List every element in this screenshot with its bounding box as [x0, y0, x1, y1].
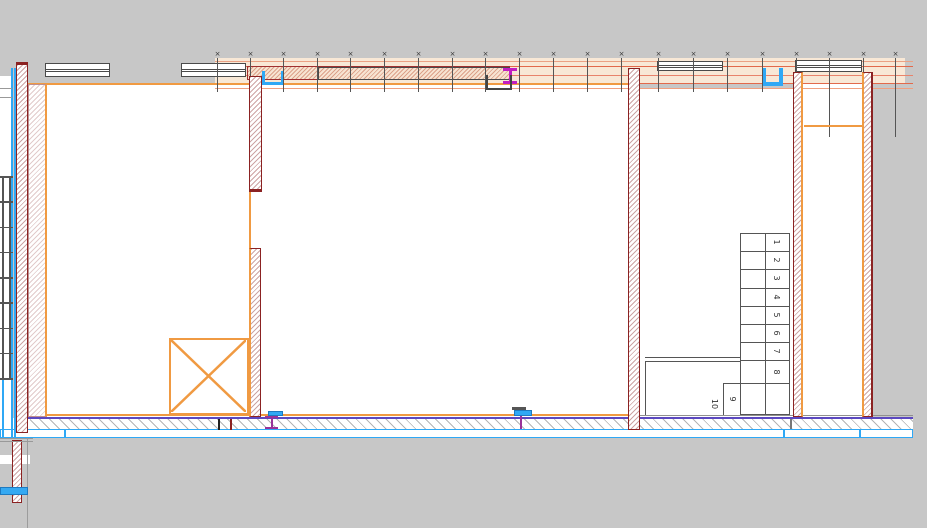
partition-wall-upper: [249, 76, 262, 192]
strip-tick-red: [230, 419, 232, 430]
column-marker-icon: ×: [550, 51, 557, 58]
ladder-rung: [0, 328, 13, 330]
column-marker-icon: ×: [618, 51, 625, 58]
ladder-rung: [0, 227, 13, 229]
edge-line-vertical: [27, 437, 28, 528]
column-marker-icon: ×: [793, 51, 800, 58]
corridor-door-line: [804, 125, 862, 127]
column-marker-icon: ×: [826, 51, 833, 58]
column-grid-tick: [418, 58, 419, 92]
beam-symbol: [657, 61, 723, 71]
column-grid-tick: [895, 58, 896, 137]
edge-line: [0, 88, 12, 89]
exterior-wall-left: [16, 62, 28, 433]
shaft-wall-left: [793, 72, 803, 417]
stair-tread-line: [740, 306, 790, 307]
shaft-x-box: [169, 338, 249, 415]
partition-finish-line: [249, 192, 251, 248]
riser-line-blue: [14, 68, 16, 437]
i-flange: [265, 427, 278, 429]
ladder-rung: [0, 277, 13, 279]
column-marker-icon: ×: [584, 51, 591, 58]
duct-u-icon: [262, 71, 284, 85]
beam-symbol: [45, 63, 110, 77]
room-bottom-finish-line: [250, 414, 640, 416]
column-grid-tick: [283, 58, 284, 92]
stair-number: 7: [772, 340, 782, 362]
column-marker-icon: ×: [214, 51, 221, 58]
column-marker-icon: ×: [759, 51, 766, 58]
beam-midline: [46, 69, 109, 72]
stair-tread-line: [740, 360, 790, 361]
column-marker-icon: ×: [690, 51, 697, 58]
stair-tread-line: [740, 324, 790, 325]
beam-symbol: [181, 63, 246, 77]
band-line: [215, 88, 913, 89]
column-grid-tick: [693, 58, 694, 92]
column-grid-tick: [384, 58, 385, 92]
niche-outline: [486, 75, 512, 90]
column-grid-tick: [762, 58, 763, 92]
column-grid-tick: [587, 58, 588, 92]
column-grid-tick: [621, 58, 622, 92]
stair-tread-line: [740, 288, 790, 289]
column-grid-tick: [485, 58, 486, 92]
post-i-icon: [265, 416, 278, 429]
stair-number: 10: [710, 393, 720, 415]
column-marker-icon: ×: [247, 51, 254, 58]
column-marker-icon: ×: [280, 51, 287, 58]
strip-tick-black: [218, 419, 220, 430]
column-grid-tick: [217, 58, 218, 92]
i-web: [271, 418, 273, 427]
ladder-rung: [0, 201, 13, 203]
edge-line: [0, 441, 33, 442]
beam-midline: [182, 69, 245, 72]
column-grid-tick: [727, 58, 728, 92]
room-center: [250, 84, 640, 417]
blue-sill-segment: [0, 429, 65, 438]
room-top-finish-line: [26, 83, 640, 85]
stair-tread-line: [740, 342, 790, 343]
column-grid-tick: [553, 58, 554, 92]
stair-landing: [645, 361, 740, 415]
ladder-rung: [0, 353, 13, 355]
stair-number: 8: [772, 361, 782, 383]
blue-sill-segment: [65, 429, 784, 438]
column-marker-icon: ×: [415, 51, 422, 58]
column-marker-icon: ×: [314, 51, 321, 58]
column-marker-icon: ×: [516, 51, 523, 58]
ladder-rung: [0, 302, 13, 304]
column-marker-icon: ×: [724, 51, 731, 58]
shaft-wall-right: [862, 72, 873, 417]
ladder-rung: [0, 176, 13, 178]
overlay-beam-outline: [318, 67, 510, 80]
riser-line-blue: [2, 378, 4, 437]
ladder-rung: [0, 252, 13, 254]
corridor-shaft: [803, 72, 862, 417]
fixture-stem-line: [520, 416, 522, 429]
blue-marker-bar: [0, 487, 28, 495]
valve-blue-icon: [514, 410, 532, 416]
column-grid-tick: [317, 58, 318, 92]
winder-divider: [723, 383, 724, 415]
column-marker-icon: ×: [655, 51, 662, 58]
blue-sill-segment: [784, 429, 860, 438]
column-marker-icon: ×: [860, 51, 867, 58]
edge-line: [0, 438, 33, 439]
column-grid-tick: [519, 58, 520, 92]
column-grid-tick: [452, 58, 453, 92]
ladder-rung: [0, 378, 13, 380]
column-grid-tick: [350, 58, 351, 92]
beam-midline: [658, 65, 722, 68]
column-marker-icon: ×: [381, 51, 388, 58]
partition-wall-middle: [628, 68, 640, 430]
floorplan-canvas[interactable]: 10 9 ×××××××××××××××××××××12345678: [0, 0, 927, 528]
x-cross-icon: [171, 340, 246, 412]
edge-line: [0, 97, 12, 98]
landing-edge-line: [645, 357, 740, 358]
stair-number: 9: [728, 388, 738, 410]
column-marker-icon: ×: [892, 51, 899, 58]
column-marker-icon: ×: [347, 51, 354, 58]
duct-u-icon: [762, 68, 783, 86]
column-marker-icon: ×: [482, 51, 489, 58]
blue-sill-segment: [860, 429, 913, 438]
column-marker-icon: ×: [449, 51, 456, 58]
insulation-layer-left: [28, 84, 47, 417]
strip-tick-gray: [790, 419, 792, 429]
partition-wall-lower: [249, 248, 261, 417]
stair-tread-line: [740, 269, 790, 270]
stair-tread-line: [740, 251, 790, 252]
column-grid-tick: [658, 58, 659, 92]
